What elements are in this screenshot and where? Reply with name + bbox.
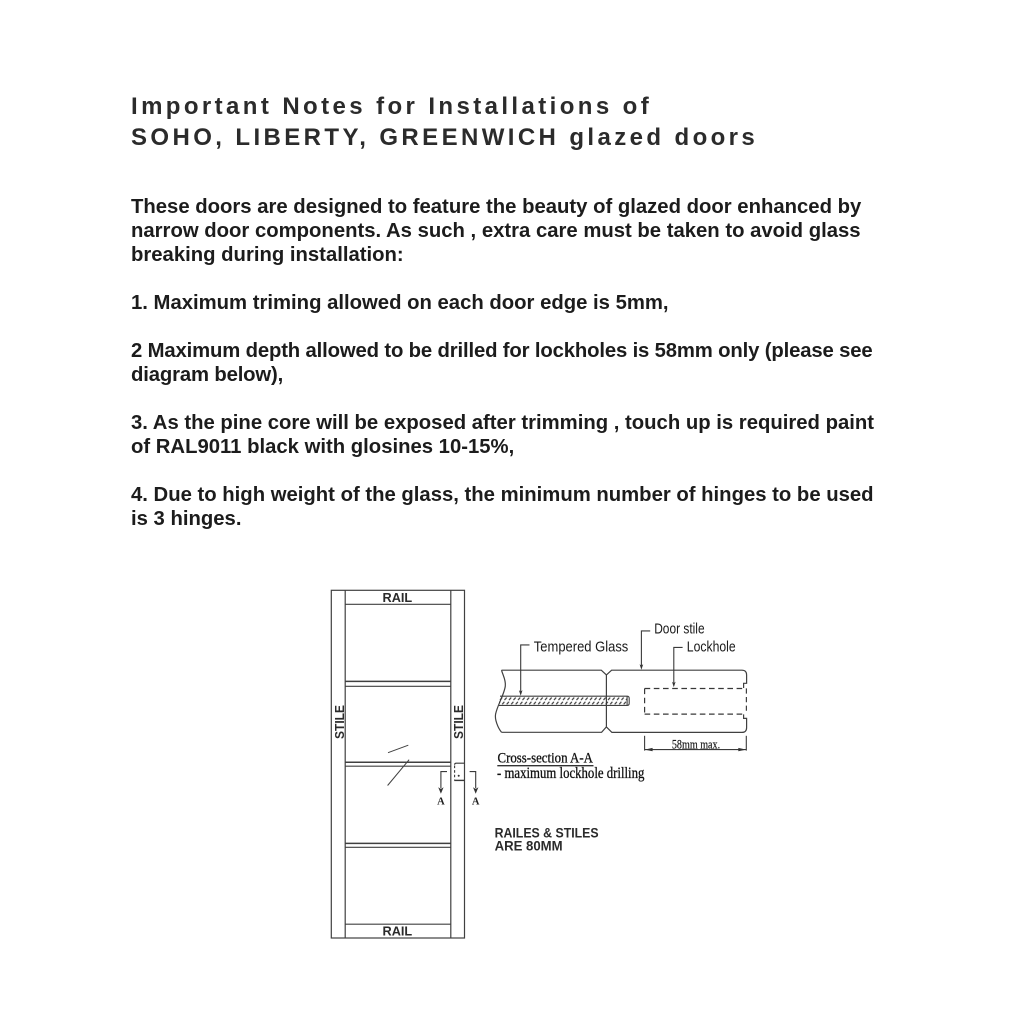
svg-text:STILE: STILE [451, 705, 466, 739]
svg-text:A: A [437, 797, 445, 808]
svg-text:RAIL: RAIL [383, 591, 413, 605]
svg-text:- maximum lockhole drilling: - maximum lockhole drilling [497, 765, 645, 782]
svg-text:Door stile: Door stile [654, 621, 704, 637]
svg-text:Lockhole: Lockhole [687, 639, 736, 655]
svg-text:Tempered Glass: Tempered Glass [534, 639, 629, 655]
svg-text:STILE: STILE [332, 705, 347, 739]
svg-text:ARE 80MM: ARE 80MM [495, 838, 563, 853]
svg-text:A: A [472, 797, 480, 808]
svg-text:RAIL: RAIL [383, 925, 413, 939]
svg-text:58mm max.: 58mm max. [672, 736, 720, 751]
